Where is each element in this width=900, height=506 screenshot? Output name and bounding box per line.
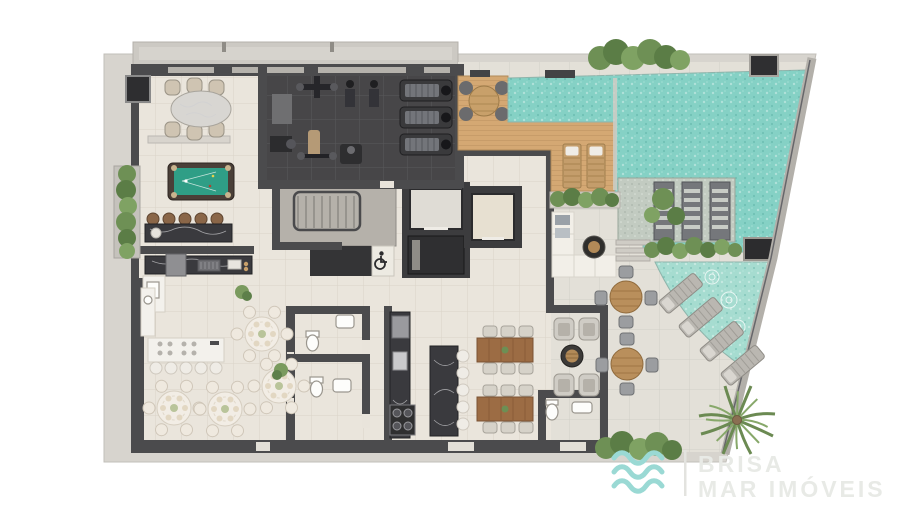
abdominal-machine bbox=[340, 144, 362, 164]
planter-left bbox=[114, 165, 140, 259]
coffee-table bbox=[583, 236, 605, 258]
brand-line-2: MAR IMÓVEIS bbox=[698, 475, 886, 502]
toilet bbox=[546, 404, 558, 420]
treadmill bbox=[400, 107, 452, 128]
armchair bbox=[579, 374, 599, 396]
wall-counter bbox=[141, 288, 155, 336]
brand-name: BRISA MAR IMÓVEIS bbox=[698, 451, 886, 502]
floor-plan: BRISA MAR IMÓVEIS bbox=[0, 0, 900, 506]
sink bbox=[144, 296, 152, 304]
marble-bar bbox=[430, 346, 469, 436]
sink bbox=[393, 352, 407, 370]
refrigerator bbox=[392, 316, 409, 338]
grill-counter bbox=[145, 254, 252, 276]
dish bbox=[228, 260, 241, 269]
service-shaft bbox=[126, 76, 150, 102]
grill bbox=[166, 254, 186, 276]
sun-lounger bbox=[563, 144, 581, 188]
coffee-table bbox=[561, 345, 583, 367]
sun-lounger bbox=[587, 144, 605, 188]
sink bbox=[572, 402, 592, 413]
pillow bbox=[555, 215, 570, 225]
hedge-top bbox=[588, 39, 690, 70]
gym-mat bbox=[272, 94, 292, 124]
roof-ledge bbox=[133, 42, 458, 66]
accessibility-area bbox=[310, 246, 394, 276]
treadmill bbox=[400, 80, 452, 101]
pool-lane-divider bbox=[613, 78, 617, 190]
island-counter bbox=[148, 338, 224, 362]
armchair bbox=[554, 318, 574, 340]
oval-marble-table bbox=[171, 91, 231, 127]
elevator-cab bbox=[410, 189, 462, 229]
wood-dining-table bbox=[477, 326, 533, 374]
billiards-table bbox=[168, 163, 234, 200]
floor-plan-image: BRISA MAR IMÓVEIS bbox=[0, 0, 900, 506]
armchair bbox=[554, 374, 574, 396]
treadmill bbox=[400, 134, 452, 155]
logo-divider bbox=[684, 450, 687, 496]
brand-line-1: BRISA bbox=[698, 451, 785, 477]
toilet bbox=[311, 381, 323, 397]
gym bbox=[264, 72, 458, 184]
edge-planter-box bbox=[750, 55, 778, 76]
armchair bbox=[579, 318, 599, 340]
submerged-lounger bbox=[682, 182, 702, 240]
stove bbox=[390, 405, 415, 435]
stairwell bbox=[276, 186, 396, 246]
faucet bbox=[210, 341, 219, 345]
sink bbox=[336, 315, 354, 328]
elevator-cab bbox=[472, 194, 514, 240]
bar-counter bbox=[145, 213, 232, 242]
submerged-lounger bbox=[710, 182, 730, 240]
toilet bbox=[307, 335, 319, 351]
wood-dining-table bbox=[477, 385, 533, 433]
sink bbox=[333, 379, 351, 392]
pillow bbox=[555, 228, 570, 238]
